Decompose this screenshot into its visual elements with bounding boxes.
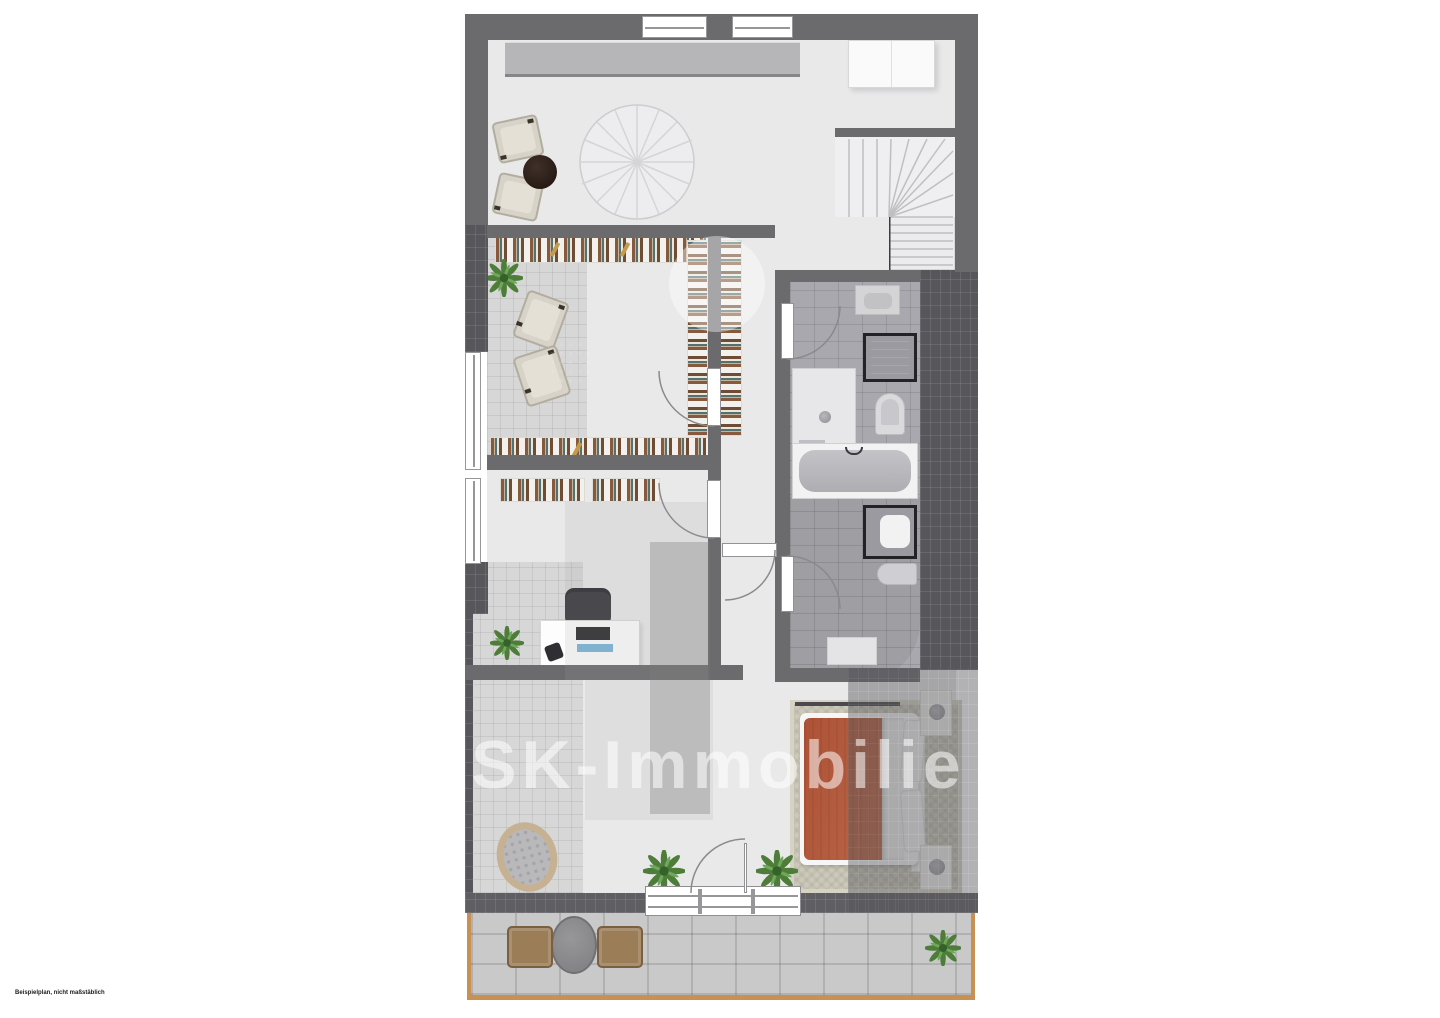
- desk-papers: [577, 644, 613, 652]
- white-cabinet: [848, 40, 935, 88]
- washbasin: [880, 515, 910, 548]
- wall-right-upper: [955, 14, 978, 272]
- terrace-table: [551, 916, 597, 974]
- door-library-swing: [653, 368, 715, 430]
- wall-left-hatched-1: [465, 225, 488, 352]
- floor-plan: KSK-Immobilie: [465, 14, 978, 1004]
- wall-shelf-office-2: [592, 478, 660, 502]
- window-frame: [473, 481, 475, 561]
- bidet: [877, 563, 917, 585]
- wall-top: [465, 14, 978, 40]
- nightstand-lamp-2: [929, 859, 945, 875]
- bathtub: [792, 443, 918, 499]
- door-office-swing: [653, 480, 715, 542]
- monitor: [576, 627, 610, 640]
- framed-shower-unit: [863, 333, 917, 382]
- coffee-table-library: [548, 340, 594, 386]
- terrace-chair-left: [507, 926, 553, 968]
- nightstand-lamp-1: [929, 704, 945, 720]
- winder-staircase: [835, 137, 955, 270]
- wall-office-bottom: [465, 665, 743, 680]
- terrace-chair-right: [597, 926, 643, 968]
- nightstand-2: [920, 845, 952, 890]
- wall-bath-top: [775, 270, 920, 282]
- window-top-1: [642, 16, 707, 38]
- desk-phone: [544, 642, 565, 663]
- wall-left-hatched-2: [465, 562, 488, 614]
- toilet-bowl: [881, 399, 899, 425]
- framed-washbasin: [863, 505, 917, 559]
- bookshelf-top: [495, 237, 713, 263]
- cabinet-seam: [891, 41, 892, 87]
- wardrobe-edge-line: [795, 702, 900, 706]
- door-bathroom-lower-swing: [783, 552, 845, 614]
- door-bathroom-upper-swing: [783, 302, 845, 364]
- bathtub-basin: [799, 450, 911, 492]
- wall-stair-edge: [835, 128, 955, 137]
- window-frame: [735, 27, 790, 29]
- wall-left-upper: [465, 14, 488, 229]
- door-hall-swing: [697, 546, 781, 606]
- wall-library-top: [487, 225, 775, 238]
- wall-library-office: [487, 455, 708, 470]
- vanity-basin: [864, 293, 892, 309]
- door-terrace-swing: [691, 839, 749, 897]
- disclaimer-text: Beispielplan, nicht maßstäblich: [15, 990, 105, 996]
- window-frame: [645, 27, 704, 29]
- toilet-upper: [875, 393, 905, 435]
- wall-shelf-office-1: [500, 478, 585, 502]
- bath-mat: [827, 637, 877, 665]
- roof-band-right: [920, 270, 978, 670]
- plant-office: [490, 626, 524, 660]
- plant-library: [485, 259, 523, 297]
- shower-head: [819, 411, 831, 423]
- sideboard: [505, 42, 800, 77]
- window-frame: [473, 355, 475, 467]
- watermark-text: KSK-Immobilie: [465, 726, 966, 804]
- vanity-sink: [855, 285, 900, 315]
- radial-round-rug: [577, 102, 697, 222]
- bookshelf-right-outer: [720, 240, 742, 436]
- wall-hall-vertical: [708, 225, 721, 680]
- glass-door-mullion: [751, 889, 755, 914]
- glass-door-rail: [648, 906, 798, 908]
- window-left-2: [465, 478, 481, 564]
- shower-unit-texture: [871, 341, 909, 374]
- desk: [540, 620, 640, 668]
- window-left-1: [465, 352, 481, 470]
- shower-enclosure: [792, 368, 856, 452]
- wall-bedroom-top: [775, 668, 920, 682]
- side-table-living: [523, 155, 557, 189]
- plant-terrace: [925, 930, 961, 966]
- window-top-2: [732, 16, 793, 38]
